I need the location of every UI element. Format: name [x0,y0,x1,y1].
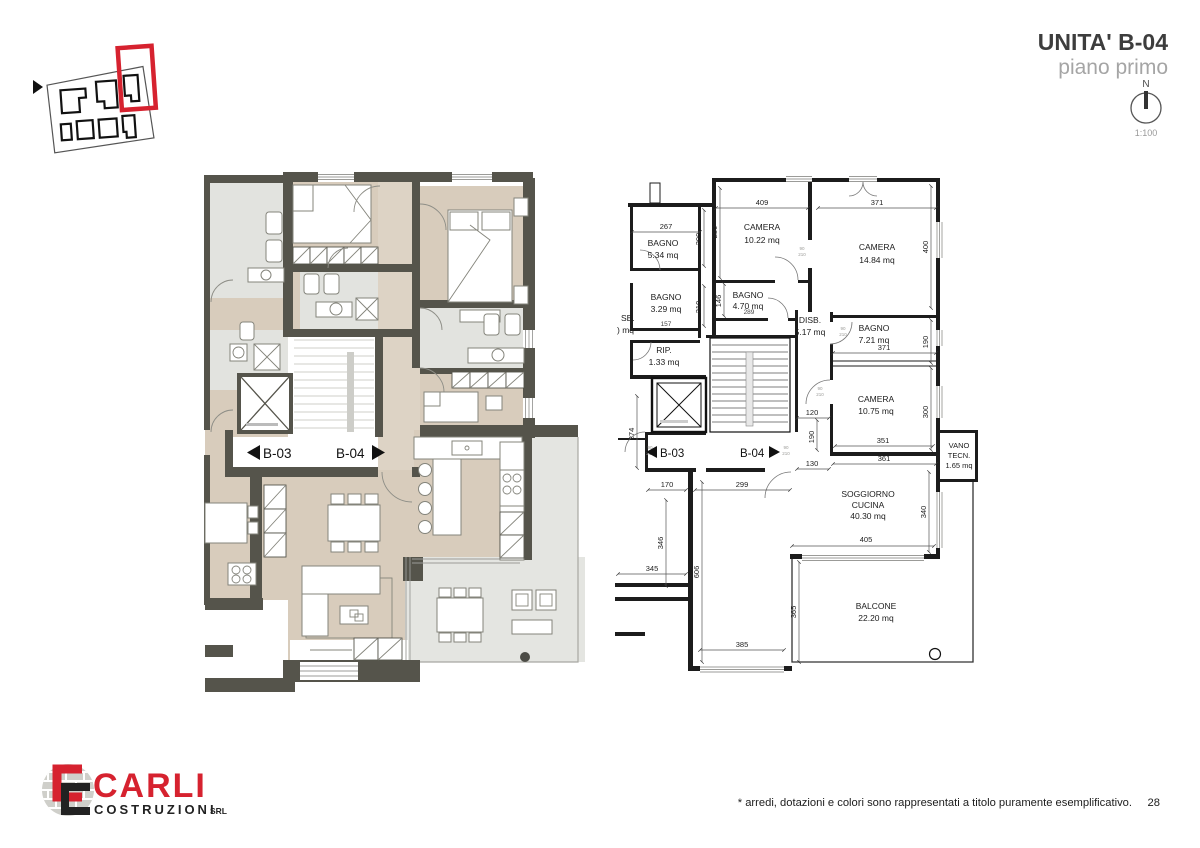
dim: 190 [921,336,930,349]
dim: 361 [878,454,891,463]
door-tag: 210 [839,332,847,337]
wardrobe [452,372,524,388]
door-tag: 210 [816,392,824,397]
logo-name: CARLI [93,767,207,805]
north-label: N [1142,79,1149,90]
dim: 346 [656,537,665,550]
dim: 371 [871,198,884,207]
page-number: 28 [1148,797,1160,809]
room-area: 5.17 mq [795,327,826,337]
room-area: 1.33 mq [649,357,680,367]
technical-plan: 267 409 371 250 400 200 210 146 289 157 … [615,177,978,673]
drain [930,649,941,660]
unit-label-b03: B-03 [660,448,684,460]
room-name: SOGGIORNO [841,489,895,499]
dim: 146 [714,295,723,308]
dim: 606 [692,566,701,579]
room-area: 14.84 mq [859,255,895,265]
room-area: 4.70 mq [733,301,764,311]
dim: 190 [807,431,816,444]
room-name: CAMERA [858,394,895,404]
room-area: 40.30 mq [850,511,886,521]
door-tag: 90 [817,386,823,391]
room-name: RIP. [656,345,671,355]
page-subtitle: piano primo [1058,56,1168,79]
footer-note: * arredi, dotazioni e colori sono rappre… [738,797,1132,809]
dim: 345 [646,564,659,573]
room-area: 10.75 mq [858,406,894,416]
dim: 299 [736,480,749,489]
room-name: TECN. [948,451,971,460]
room-name: DISB. [799,315,821,325]
b04-arrow-icon [769,446,780,458]
dim: 250 [710,226,719,239]
room-name: BAGNO [859,323,890,333]
company-logo: CARLI COSTRUZIONI SRL [42,764,227,817]
room-name: CUCINA [852,500,885,510]
door-tag: 90 [799,246,805,251]
room-area: 5.34 mq [648,250,679,260]
header: UNITA' B-04 piano primo [1038,29,1168,79]
room-area: 7.21 mq [859,335,890,345]
room-name: CAMERA [859,242,896,252]
wardrobe [293,247,378,264]
dim: 200 [694,233,703,246]
dim: 157 [661,321,672,328]
dim: 400 [921,241,930,254]
dim: 170 [661,480,674,489]
dim: 300 [921,406,930,419]
unit-label-b04: B-04 [740,448,765,460]
dim: 340 [919,506,928,519]
dim: 274 [627,428,636,441]
dim: 409 [756,198,769,207]
key-plan-arrow-icon [33,80,43,94]
dim: 385 [736,640,749,649]
furnished-plan: B-03 B-04 [204,172,585,692]
room-name: CAMERA [744,222,781,232]
door-tag: 210 [798,252,806,257]
door-tag: 90 [840,326,846,331]
page-title: UNITA' B-04 [1038,29,1168,55]
technical-stair-core [652,338,790,432]
scale-label: 1:100 [1135,128,1158,138]
drain [520,652,530,662]
room-area: 10.22 mq [744,235,780,245]
dim: 351 [877,436,890,445]
dim: 210 [694,301,703,314]
door-tag: 90 [783,445,789,450]
unit-label-b03: B-03 [263,446,292,461]
room-name: BAGNO [651,292,682,302]
door-tag: 210 [782,451,790,456]
dim: 267 [660,222,673,231]
key-plan [33,46,158,153]
room-area: 1.65 mq [945,461,972,470]
room-name: BAGNO [648,238,679,248]
dim: 405 [860,535,873,544]
brochure-page: UNITA' B-04 piano primo N 1:100 [0,0,1200,848]
logo-subname: COSTRUZIONI [94,802,217,817]
room-name-cropped: SB. [621,313,635,323]
room-name: VANO [949,441,970,450]
corridor-labels-technical: B-03 B-04 [646,446,780,460]
room-name: BAGNO [733,290,764,300]
unit-label-b04: B-04 [336,446,365,461]
room-area-cropped: ) mq [617,325,634,335]
dim: 365 [789,606,798,619]
dim: 130 [806,459,819,468]
room-area: 22.20 mq [858,613,894,623]
room-area: 3.29 mq [651,304,682,314]
north-arrow-icon: N 1:100 [1131,79,1161,138]
footer: * arredi, dotazioni e colori sono rappre… [738,797,1160,809]
dim: 120 [806,408,819,417]
room-name: BALCONE [856,601,897,611]
logo-suffix: SRL [210,806,227,816]
